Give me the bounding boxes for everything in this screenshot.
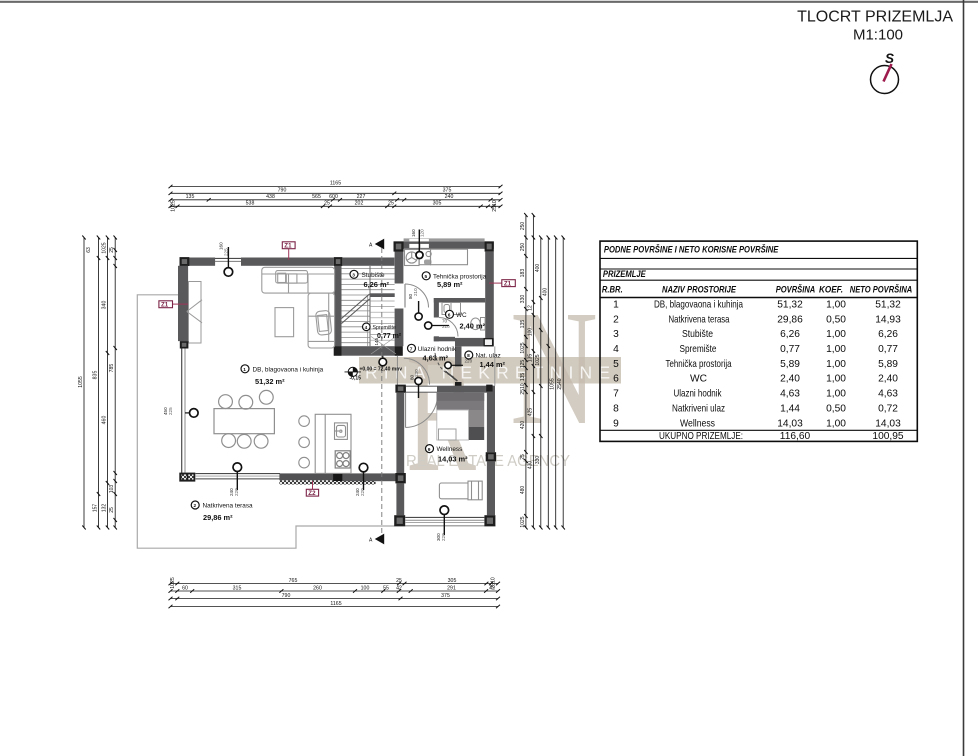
svg-text:9: 9 [428,447,431,453]
svg-text:225: 225 [223,248,228,256]
svg-text:135: 135 [186,194,195,200]
svg-text:PRIZEMLJE: PRIZEMLJE [603,269,646,280]
svg-text:NETO POVRŠINA: NETO POVRŠINA [850,284,913,295]
svg-text:Z1: Z1 [161,302,169,309]
svg-text:29,86: 29,86 [777,314,803,325]
svg-text:0,50: 0,50 [826,314,846,325]
svg-text:42: 42 [489,585,495,591]
svg-text:Z1: Z1 [284,243,292,250]
svg-text:4,63 m²: 4,63 m² [423,353,449,362]
svg-text:Stubište: Stubište [362,272,386,279]
svg-text:425: 425 [527,408,533,417]
svg-text:1025: 1025 [520,516,526,527]
svg-text:375: 375 [441,593,450,599]
svg-text:100,95: 100,95 [872,431,903,442]
svg-text:Spremište: Spremište [373,325,396,331]
svg-text:103: 103 [109,485,115,494]
svg-text:PODNE POVRŠINE I NETO KORISNE: PODNE POVRŠINE I NETO KORISNE POVRŠINE [604,244,779,255]
svg-text:291: 291 [447,585,456,591]
svg-text:9: 9 [613,418,619,429]
svg-text:260: 260 [313,585,322,591]
svg-text:2,40: 2,40 [780,374,800,385]
svg-text:8: 8 [613,403,619,414]
svg-text:Ulazni hodnik: Ulazni hodnik [418,346,457,353]
svg-text:116,60: 116,60 [780,431,811,442]
svg-text:25: 25 [109,507,115,513]
svg-text:6: 6 [448,313,451,319]
svg-text:790: 790 [278,188,287,194]
svg-text:220: 220 [234,488,239,496]
svg-text:42: 42 [396,585,402,591]
svg-text:125: 125 [520,360,526,369]
svg-text:Natkriveni ulaz: Natkriveni ulaz [672,403,725,414]
svg-text:4: 4 [613,344,619,355]
svg-text:5,89 m²: 5,89 m² [437,280,463,289]
svg-text:7: 7 [410,347,413,353]
svg-text:29,86 m²: 29,86 m² [203,513,233,522]
svg-text:400: 400 [535,264,541,273]
svg-text:25: 25 [388,201,394,207]
svg-text:6,26: 6,26 [878,329,898,340]
svg-text:340: 340 [102,301,108,310]
svg-text:25: 25 [396,578,402,584]
svg-text:785: 785 [109,364,115,373]
svg-text:790: 790 [282,593,291,599]
svg-text:1025: 1025 [171,200,177,212]
svg-text:Wellness: Wellness [437,446,463,453]
svg-text:1055: 1055 [550,378,556,390]
svg-text:S: S [885,51,894,66]
svg-text:M1:100: M1:100 [853,27,903,44]
svg-text:0,77: 0,77 [878,344,898,355]
svg-text:438: 438 [266,194,275,200]
svg-text:WC: WC [456,312,467,319]
svg-text:2,40 m²: 2,40 m² [460,321,486,330]
svg-text:5,89: 5,89 [878,359,898,370]
svg-text:70: 70 [442,319,448,324]
svg-text:100: 100 [527,328,533,337]
svg-text:1,00: 1,00 [826,374,846,385]
svg-text:-0,15: -0,15 [350,376,362,382]
svg-text:POVRŠINA: POVRŠINA [776,284,816,295]
svg-text:100: 100 [361,585,370,591]
svg-text:6,26 m²: 6,26 m² [364,280,390,289]
svg-text:Spremište: Spremište [680,344,717,355]
svg-text:Wellness: Wellness [680,418,715,429]
svg-text:120: 120 [420,229,425,237]
svg-text:538: 538 [246,201,255,207]
svg-text:135: 135 [520,320,526,329]
svg-text:305: 305 [433,201,442,207]
svg-text:135: 135 [520,373,526,382]
svg-text:480: 480 [520,486,526,495]
svg-text:375: 375 [443,188,452,194]
svg-text:0,72: 0,72 [878,403,898,414]
svg-text:3: 3 [352,273,355,279]
svg-text:160: 160 [411,229,416,237]
svg-text:315: 315 [233,585,242,591]
svg-text:14,93: 14,93 [875,314,901,325]
svg-text:Nat. ulaz: Nat. ulaz [476,353,501,360]
svg-text:1165: 1165 [330,181,341,187]
svg-text:565: 565 [312,194,321,200]
svg-text:3: 3 [613,329,619,340]
svg-text:2: 2 [613,314,619,325]
svg-text:Natkrivena terasa: Natkrivena terasa [203,503,254,510]
svg-text:+0,00 = 72,40 mnv: +0,00 = 72,40 mnv [360,366,403,372]
svg-text:430: 430 [527,461,533,470]
svg-text:1165: 1165 [330,601,341,607]
svg-text:1,00: 1,00 [826,300,846,311]
svg-text:0,77 m²: 0,77 m² [377,333,402,340]
svg-text:600: 600 [329,194,338,200]
svg-text:2: 2 [194,503,197,509]
svg-text:25: 25 [520,454,526,460]
svg-text:7: 7 [613,389,619,400]
svg-text:765: 765 [289,578,298,584]
svg-text:1,44 m²: 1,44 m² [480,360,506,369]
svg-text:5,89: 5,89 [780,359,800,370]
svg-text:2510: 2510 [492,200,498,212]
svg-text:4,63: 4,63 [780,389,800,400]
svg-text:210: 210 [442,324,450,329]
svg-text:Stubište: Stubište [682,329,713,340]
svg-text:51,32: 51,32 [777,300,803,311]
svg-text:420: 420 [520,421,526,430]
svg-text:1025: 1025 [520,342,526,353]
svg-text:835: 835 [93,371,99,380]
svg-text:1025: 1025 [535,354,541,365]
svg-text:25: 25 [324,201,330,207]
svg-text:230: 230 [414,369,419,377]
svg-text:DB, blagovaona i kuhinja: DB, blagovaona i kuhinja [654,300,743,311]
svg-text:1025: 1025 [102,242,108,253]
svg-text:Z1: Z1 [504,281,512,288]
svg-text:60: 60 [182,585,188,591]
svg-text:250: 250 [520,222,526,231]
svg-text:5: 5 [425,274,428,280]
svg-text:8: 8 [467,353,470,359]
svg-text:1055: 1055 [78,376,84,388]
svg-text:55: 55 [383,585,389,591]
svg-text:1,00: 1,00 [826,389,846,400]
svg-text:51,32 m²: 51,32 m² [255,377,285,386]
svg-text:135: 135 [527,354,533,363]
svg-text:4,63: 4,63 [878,389,898,400]
svg-text:5: 5 [613,359,619,370]
svg-text:Tehnička prostorija: Tehnička prostorija [666,359,732,370]
svg-text:1,00: 1,00 [826,418,846,429]
svg-text:220: 220 [360,488,365,496]
svg-text:220: 220 [441,533,446,541]
svg-text:330: 330 [520,295,526,304]
svg-text:UKUPNO PRIZEMLJE:: UKUPNO PRIZEMLJE: [659,431,743,442]
svg-text:Ulazni hodnik: Ulazni hodnik [674,389,723,400]
svg-text:145: 145 [374,337,379,345]
svg-text:460: 460 [102,416,108,425]
svg-text:1: 1 [613,300,619,311]
svg-text:14,03: 14,03 [777,418,803,429]
svg-text:330: 330 [535,456,541,465]
svg-text:DB, blagovaona i kuhinja: DB, blagovaona i kuhinja [253,366,324,373]
svg-text:0,77: 0,77 [780,344,800,355]
svg-text:1,44: 1,44 [780,403,800,414]
svg-text:250: 250 [520,243,526,252]
svg-text:14,03: 14,03 [875,418,901,429]
svg-text:KOEF.: KOEF. [819,285,843,295]
svg-text:51,32: 51,32 [875,300,901,311]
svg-text:NAZIV PROSTORIJE: NAZIV PROSTORIJE [662,285,737,295]
svg-text:Natkrivena terasa: Natkrivena terasa [669,314,730,325]
svg-text:1025: 1025 [170,577,176,589]
svg-text:210: 210 [413,288,418,296]
svg-text:63: 63 [86,247,92,253]
svg-text:R.BR.: R.BR. [602,285,623,295]
svg-text:1,00: 1,00 [826,344,846,355]
svg-text:227: 227 [357,194,366,200]
svg-text:6: 6 [613,374,619,385]
svg-text:1: 1 [243,367,246,373]
svg-text:305: 305 [448,578,457,584]
svg-text:2510: 2510 [520,383,526,394]
svg-text:14,03 m²: 14,03 m² [438,454,468,463]
svg-text:240: 240 [445,194,454,200]
svg-text:2540: 2540 [557,378,563,389]
svg-text:4: 4 [365,325,368,331]
svg-text:0,50: 0,50 [826,403,846,414]
svg-text:WC: WC [690,374,707,385]
svg-text:Z2: Z2 [308,490,316,497]
svg-text:225: 225 [168,407,173,415]
svg-text:TLOCRT PRIZEMLJA: TLOCRT PRIZEMLJA [797,9,953,26]
svg-text:12: 12 [527,305,533,311]
svg-text:6,26: 6,26 [780,329,800,340]
svg-text:132: 132 [102,504,108,513]
svg-text:25: 25 [109,247,115,253]
svg-text:2,40: 2,40 [878,374,898,385]
svg-text:400: 400 [542,288,548,297]
svg-text:1,00: 1,00 [826,359,846,370]
svg-text:202: 202 [355,201,364,207]
svg-text:157: 157 [93,504,99,513]
svg-text:183: 183 [520,269,526,278]
svg-text:1,00: 1,00 [826,329,846,340]
